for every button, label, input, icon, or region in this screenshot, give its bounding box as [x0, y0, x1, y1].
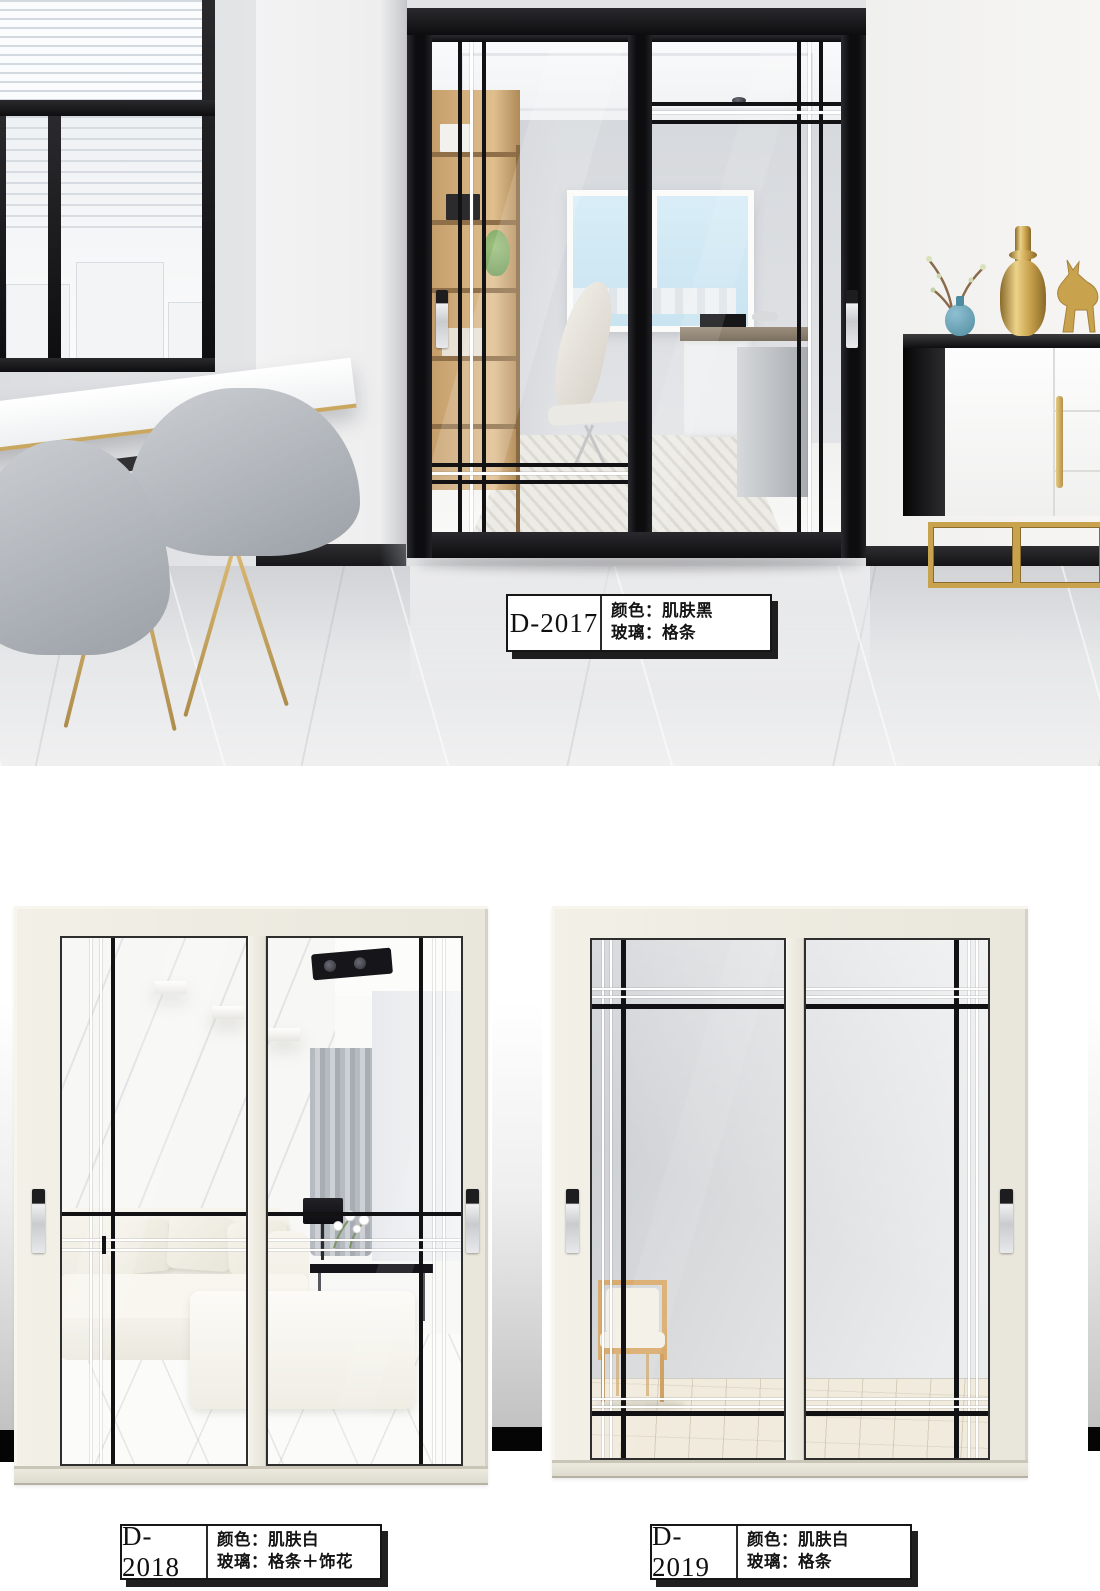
desk-bowl — [752, 311, 778, 321]
window-frame-right — [202, 0, 215, 372]
spec-plate-d2017: D-2017 颜色：肌肤黑 玻璃：格条 — [506, 594, 772, 652]
sideboard-cabinet — [903, 334, 1100, 586]
shelf-board — [432, 152, 520, 157]
cabinet-leg-gold — [928, 522, 1018, 588]
window-frame-left — [0, 116, 6, 358]
model-number: D-2017 — [508, 596, 602, 650]
grid-bar-black — [432, 480, 635, 484]
shelf-books — [440, 124, 470, 152]
window-blinds — [0, 0, 202, 100]
grid-bar-black — [652, 102, 841, 106]
decor-blue-vase-neck — [956, 296, 964, 306]
spec-glass: 玻璃：格条 — [611, 624, 761, 644]
cabinet-side — [903, 348, 945, 516]
cabinet-top — [903, 334, 1100, 348]
sliding-door-d2019 — [552, 906, 1028, 1478]
glass-pane-right — [266, 936, 463, 1466]
glass-pane-right — [804, 938, 990, 1460]
door-handle — [846, 290, 858, 348]
grid-bar-white — [432, 472, 635, 475]
spec-text: 颜色：肌肤黑 玻璃：格条 — [602, 596, 770, 650]
sliding-door-d2017 — [407, 8, 866, 558]
door-handle — [466, 1189, 479, 1253]
door-handle — [32, 1189, 45, 1253]
glass-pane-left — [590, 938, 786, 1460]
window-left — [0, 0, 215, 372]
photo-edge-strip — [1088, 1000, 1100, 1427]
model-number: D-2019 — [652, 1526, 738, 1578]
panel-bottom-rail — [432, 532, 841, 558]
door-frame-head — [407, 8, 866, 35]
wall-corner-shadow — [380, 0, 407, 570]
showroom-photo-d2017: D-2017 颜色：肌肤黑 玻璃：格条 — [0, 0, 1100, 766]
spec-glass: 玻璃：格条＋饰花 — [217, 1553, 371, 1573]
spec-color: 颜色：肌肤白 — [747, 1531, 901, 1551]
cabinet-leg-gold — [1015, 522, 1100, 588]
model-number: D-2018 — [122, 1526, 208, 1578]
decor-gold-deer — [1049, 254, 1100, 336]
grid-bar-black — [432, 463, 635, 467]
panel-meeting-stile — [628, 35, 652, 558]
window-reflection-stripes — [0, 116, 202, 236]
spec-glass: 玻璃：格条 — [747, 1553, 901, 1573]
spec-color: 颜色：肌肤黑 — [611, 602, 761, 622]
cabinet-door — [945, 348, 1100, 516]
spec-text: 颜色：肌肤白 玻璃：格条＋饰花 — [208, 1526, 380, 1578]
spec-text: 颜色：肌肤白 玻璃：格条 — [738, 1526, 910, 1578]
door-frame-right — [841, 8, 866, 558]
door-bottom-track — [552, 1460, 1028, 1478]
shelf-books — [446, 194, 480, 220]
catalog-page: D-2017 颜色：肌肤黑 玻璃：格条 — [0, 0, 1100, 1591]
cabinet-seam — [1053, 348, 1055, 516]
building-silhouette — [168, 302, 202, 358]
window-frame-mid — [0, 100, 215, 116]
photo-edge-block — [492, 1427, 542, 1451]
grid-bar-white — [652, 111, 841, 114]
door-frame-left — [407, 8, 432, 558]
door-handle — [566, 1189, 579, 1253]
cabinet-handle — [1056, 396, 1063, 488]
window-sash-divider — [48, 116, 61, 358]
door-handle — [1000, 1189, 1013, 1253]
spec-color: 颜色：肌肤白 — [217, 1531, 371, 1551]
photo-edge-strip — [492, 1000, 542, 1427]
photo-edge-block — [1088, 1427, 1100, 1451]
building-silhouette — [76, 262, 164, 358]
door-floor-shadow — [415, 556, 865, 570]
window-glass — [0, 116, 202, 358]
spec-plate-d2018: D-2018 颜色：肌肤白 玻璃：格条＋饰花 — [120, 1524, 382, 1580]
spec-plate-d2019: D-2019 颜色：肌肤白 玻璃：格条 — [650, 1524, 912, 1580]
decor-gold-bottle-ring — [1009, 250, 1037, 260]
decor-gold-vase — [1000, 260, 1046, 336]
window-sill — [0, 358, 215, 372]
grid-bar-black — [652, 120, 841, 124]
sliding-door-d2018 — [14, 906, 488, 1485]
panel-meeting-stile — [248, 936, 266, 1466]
panel-meeting-stile — [786, 938, 804, 1460]
door-handle — [436, 290, 448, 348]
decor-blue-vase — [945, 304, 975, 336]
glass-pane-left — [60, 936, 248, 1466]
door-bottom-track — [14, 1466, 488, 1485]
